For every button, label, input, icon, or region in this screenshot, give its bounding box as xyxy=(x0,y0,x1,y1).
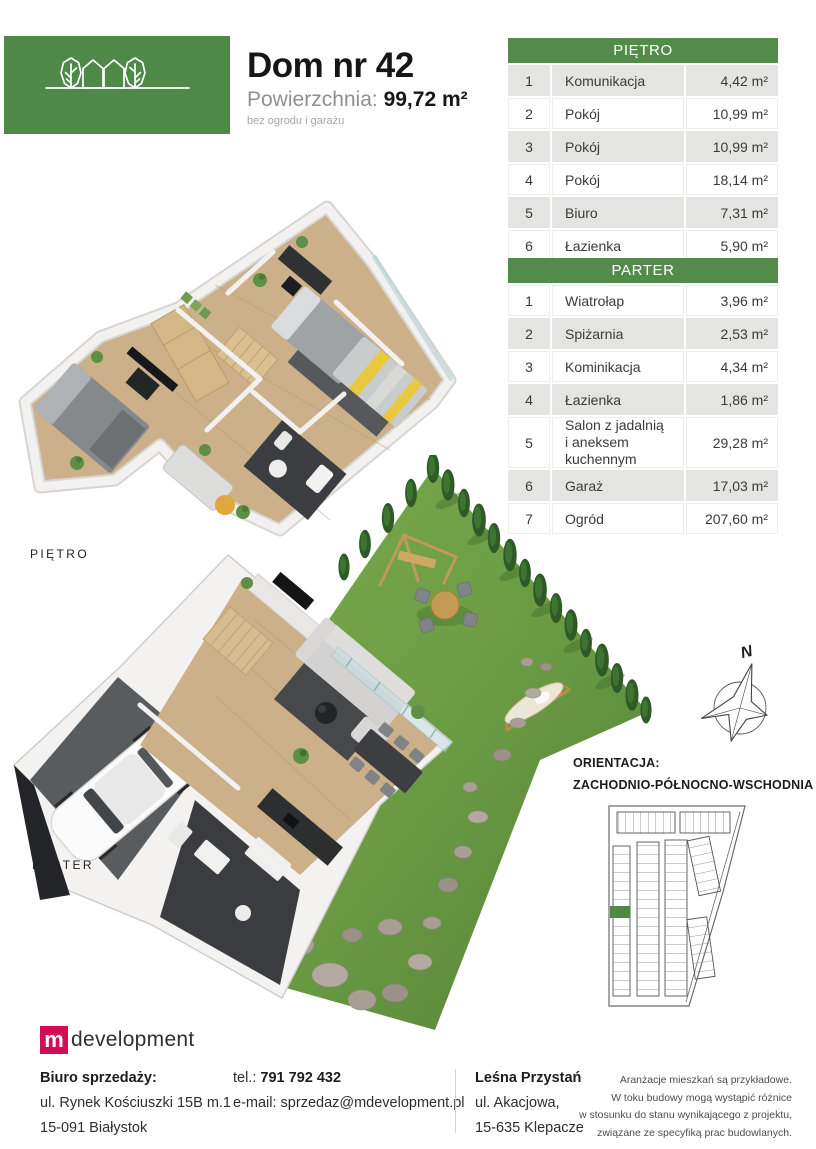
room-number: 5 xyxy=(508,197,550,228)
office-label: Biuro sprzedaży: xyxy=(40,1070,157,1086)
room-name: Kominikacja xyxy=(552,351,684,382)
table-pietro-header: PIĘTRO xyxy=(508,38,778,63)
room-number: 4 xyxy=(508,164,550,195)
room-number: 2 xyxy=(508,318,550,349)
room-area: 2,53 m² xyxy=(686,318,778,349)
area-line: Powierzchnia: 99,72 m² xyxy=(247,88,468,112)
room-number: 2 xyxy=(508,98,550,129)
mdevelopment-wordmark: development xyxy=(71,1028,195,1052)
room-name: Biuro xyxy=(552,197,684,228)
area-value: 99,72 m² xyxy=(384,88,468,111)
room-name: Spiżarnia xyxy=(552,318,684,349)
table-row: 2 Pokój 10,99 m² xyxy=(508,98,778,129)
room-number: 1 xyxy=(508,65,550,96)
table-row: 1 Komunikacja 4,42 m² xyxy=(508,65,778,96)
table-parter-header: PARTER xyxy=(508,258,778,283)
footer-office-column: Biuro sprzedaży: ul. Rynek Kościuszki 15… xyxy=(40,1066,231,1141)
room-number: 3 xyxy=(508,131,550,162)
room-name: Pokój xyxy=(552,164,684,195)
table-row: 6 Łazienka 5,90 m² xyxy=(508,230,778,261)
room-name: Łazienka xyxy=(552,384,684,415)
orientation-label: ORIENTACJA: xyxy=(573,752,813,774)
table-pietro: PIĘTRO 1 Komunikacja 4,42 m² 2 Pokój 10,… xyxy=(508,38,778,261)
phone-number: 791 792 432 xyxy=(260,1070,341,1086)
page-title: Dom nr 42 xyxy=(247,48,468,84)
table-row: 5 Biuro 7,31 m² xyxy=(508,197,778,228)
table-row: 1 Wiatrołap 3,96 m² xyxy=(508,285,778,316)
room-area: 4,34 m² xyxy=(686,351,778,382)
room-area: 7,31 m² xyxy=(686,197,778,228)
room-area: 1,86 m² xyxy=(686,384,778,415)
brand-houses-icon xyxy=(4,36,230,133)
room-area: 10,99 m² xyxy=(686,131,778,162)
email-label: e-mail: xyxy=(233,1095,277,1111)
table-row: 3 Kominikacja 4,34 m² xyxy=(508,351,778,382)
orientation-value: ZACHODNIO-PÓŁNOCNO-WSCHODNIA xyxy=(573,774,813,796)
sitemap-image xyxy=(573,800,815,1012)
room-area: 4,42 m² xyxy=(686,65,778,96)
area-label: Powierzchnia: xyxy=(247,88,378,111)
mdevelopment-m-icon: m xyxy=(40,1026,68,1054)
footer-disclaimer: Aranżacje mieszkań są przykładowe. W tok… xyxy=(452,1072,792,1142)
parter-plan-label: PARTER xyxy=(32,858,94,872)
mdevelopment-logo: m development xyxy=(40,1026,195,1054)
title-block: Dom nr 42 Powierzchnia: 99,72 m² bez ogr… xyxy=(247,48,468,127)
room-area: 5,90 m² xyxy=(686,230,778,261)
area-note: bez ogrodu i garażu xyxy=(247,115,468,127)
flyer-page: LEŚNA PRZYSTAŃ Dom nr 42 Powierzchnia: 9… xyxy=(0,0,816,1149)
office-address-line1: ul. Rynek Kościuszki 15B m.1 xyxy=(40,1095,231,1111)
room-number: 3 xyxy=(508,351,550,382)
email-address: sprzedaz@mdevelopment.pl xyxy=(281,1095,465,1111)
table-row: 4 Łazienka 1,86 m² xyxy=(508,384,778,415)
room-number: 6 xyxy=(508,230,550,261)
brand-logo: LEŚNA PRZYSTAŃ xyxy=(4,36,230,134)
room-name: Pokój xyxy=(552,131,684,162)
sitemap-highlighted-unit xyxy=(610,906,630,918)
room-number: 1 xyxy=(508,285,550,316)
room-name: Pokój xyxy=(552,98,684,129)
room-area: 3,96 m² xyxy=(686,285,778,316)
room-area: 10,99 m² xyxy=(686,98,778,129)
room-area: 18,14 m² xyxy=(686,164,778,195)
phone-label: tel.: xyxy=(233,1070,256,1086)
compass-rose-icon xyxy=(692,642,788,756)
room-name: Komunikacja xyxy=(552,65,684,96)
office-address-line2: 15-091 Białystok xyxy=(40,1120,147,1136)
room-number: 4 xyxy=(508,384,550,415)
table-row: 2 Spiżarnia 2,53 m² xyxy=(508,318,778,349)
room-name: Łazienka xyxy=(552,230,684,261)
footer-contact-column: tel.: 791 792 432 e-mail: sprzedaz@mdeve… xyxy=(233,1066,465,1116)
orientation-block: ORIENTACJA: ZACHODNIO-PÓŁNOCNO-WSCHODNIA xyxy=(573,752,813,796)
table-row: 3 Pokój 10,99 m² xyxy=(508,131,778,162)
table-row: 4 Pokój 18,14 m² xyxy=(508,164,778,195)
room-name: Wiatrołap xyxy=(552,285,684,316)
